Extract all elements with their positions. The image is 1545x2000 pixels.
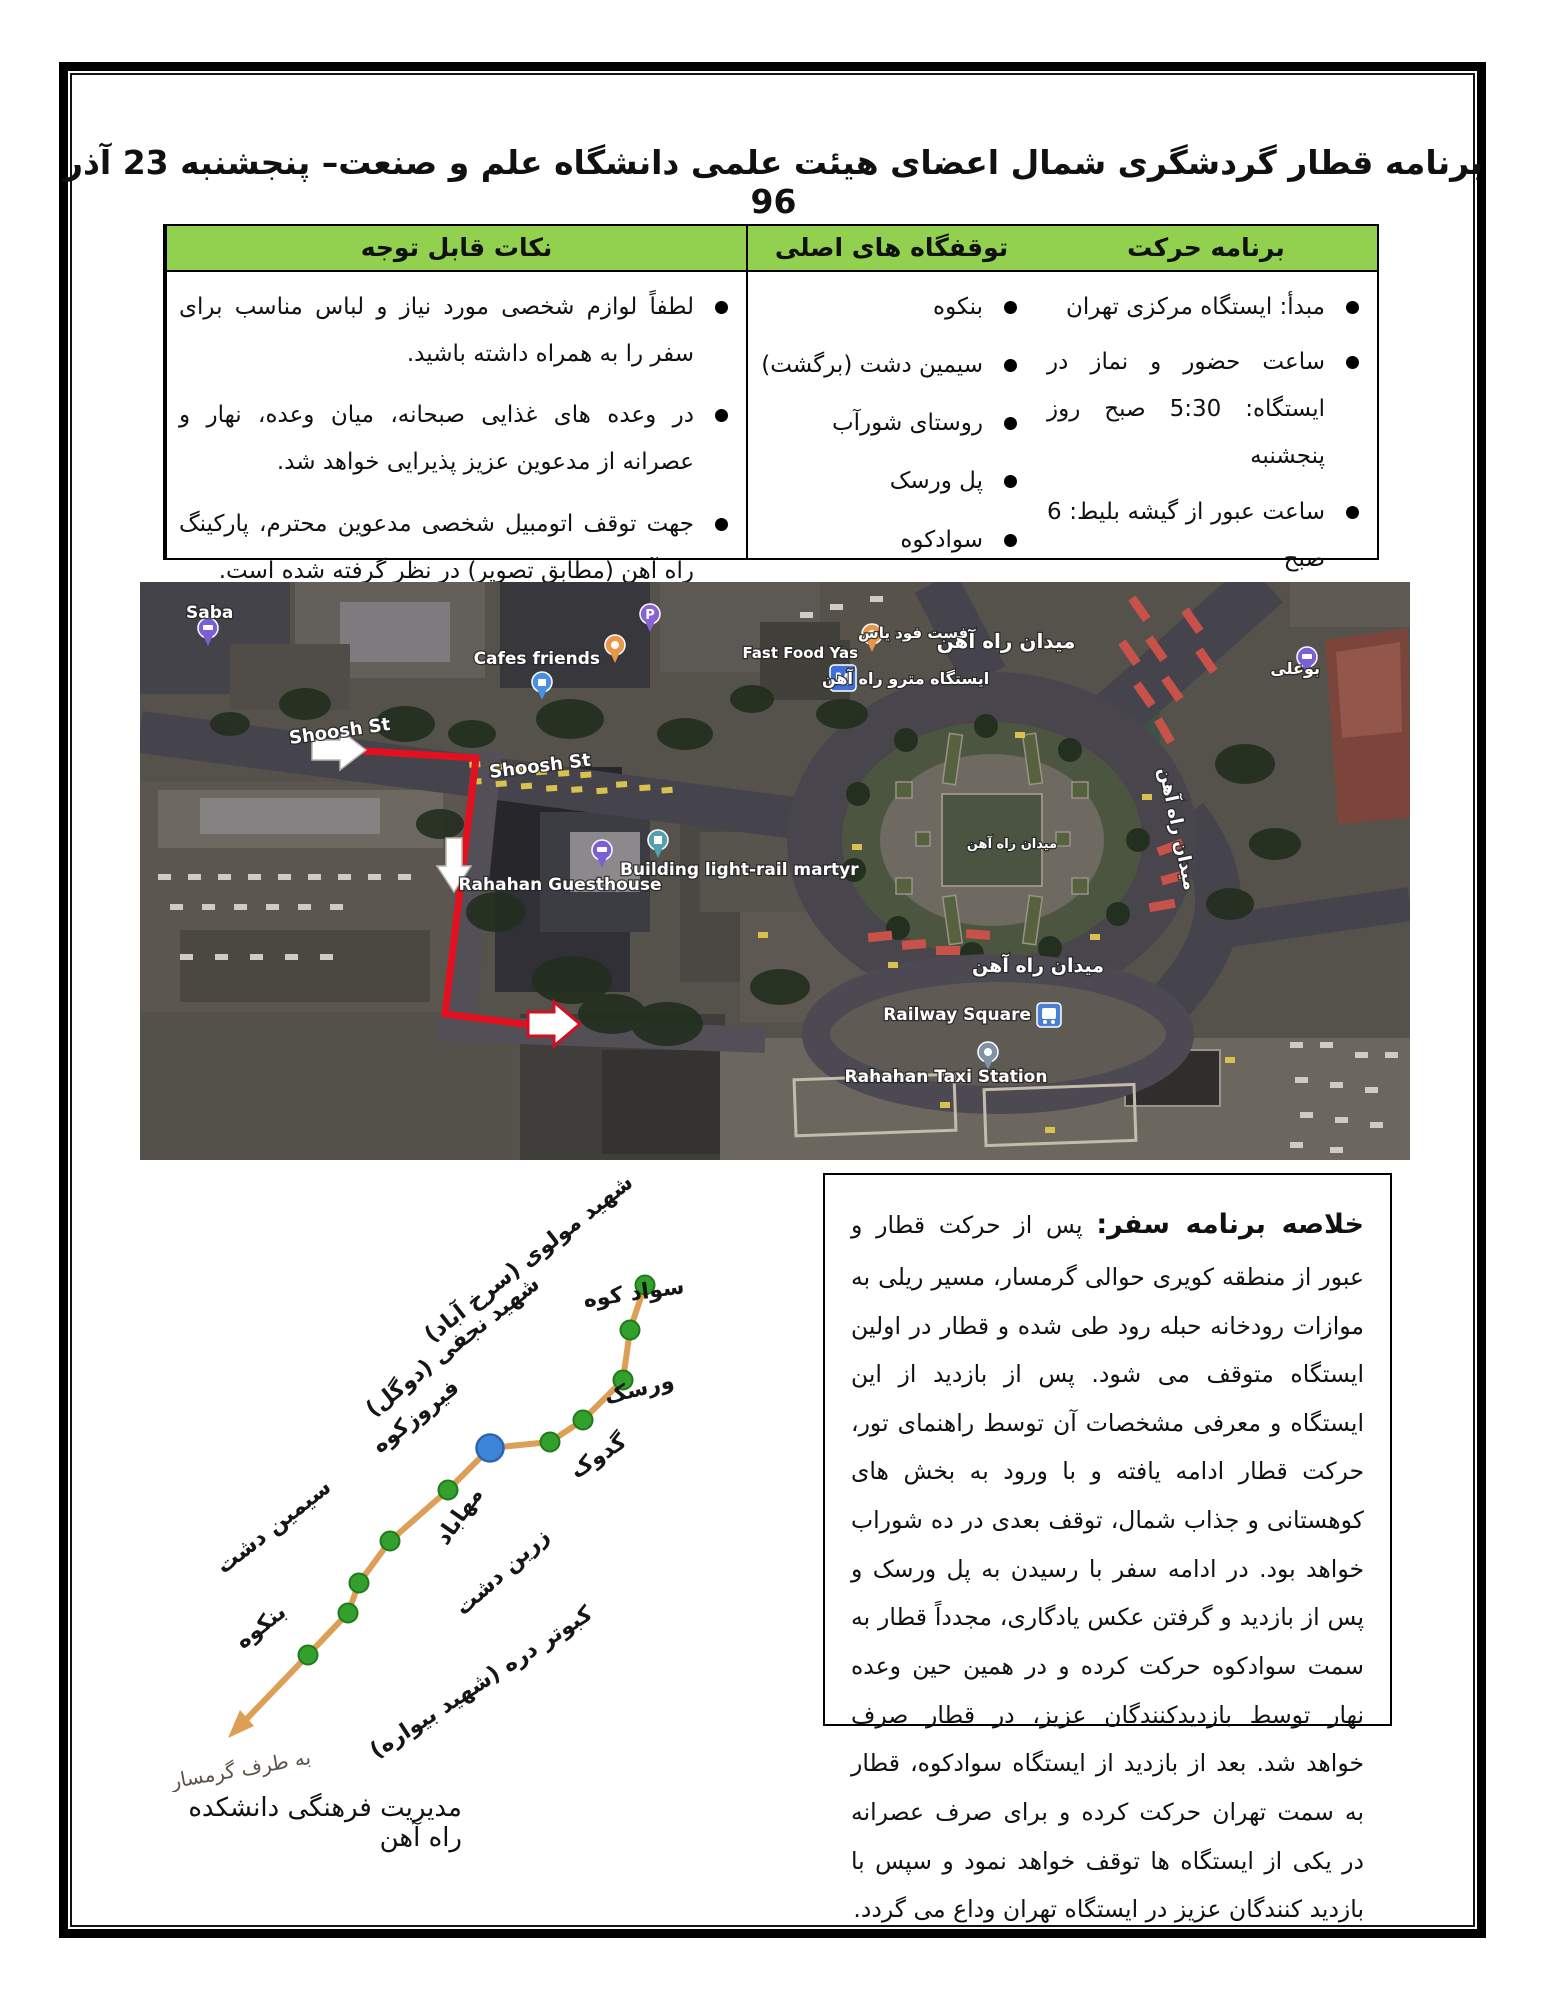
list-item: سیمین دشت (برگشت) xyxy=(760,342,1027,389)
list-item: در وعده های غذایی صبحانه، میان وعده، نها… xyxy=(179,392,738,486)
bouali-label: بوعلی xyxy=(1270,659,1320,678)
list-item: ساعت عبور از گیشه بلیط: 6 صبح xyxy=(1047,489,1369,583)
header-stops: توقفگاه های اصلی xyxy=(748,226,1035,272)
summary-body: پس از حرکت قطار و عبور از منطقه کویری حو… xyxy=(851,1211,1364,1923)
saba-label: Saba xyxy=(186,603,233,623)
header-notes: نکات قابل توجه xyxy=(167,226,746,272)
header-schedule: برنامه حرکت xyxy=(1035,226,1377,272)
station-label: گدوک xyxy=(565,1427,632,1483)
bus-square-icon xyxy=(1037,1003,1061,1027)
station-label: سیمین دشت xyxy=(212,1475,336,1580)
fastfood-label-en: Fast Food Yas xyxy=(742,644,858,662)
summary-heading: خلاصه برنامه سفر: xyxy=(1096,1209,1364,1240)
list-item: سوادکوه xyxy=(760,517,1027,564)
metro-station-label: ایستگاه مترو راه آهن xyxy=(822,668,989,688)
cafes-friends-label: Cafes friends xyxy=(474,649,600,669)
stops-list: بنکوه سیمین دشت (برگشت) روستای شورآب پل … xyxy=(748,272,1035,581)
trip-summary-box: خلاصه برنامه سفر: پس از حرکت قطار و عبور… xyxy=(823,1173,1392,1726)
guesthouse-label: Rahahan Guesthouse xyxy=(458,875,661,895)
taxi-station-label: Rahahan Taxi Station xyxy=(845,1067,1048,1087)
info-table: برنامه حرکت مبدأ: ایستگاه مرکزی تهران سا… xyxy=(163,224,1379,560)
column-schedule: برنامه حرکت مبدأ: ایستگاه مرکزی تهران سا… xyxy=(1035,226,1377,558)
railway-square-fa-top: میدان راه آهن xyxy=(937,628,1076,653)
station-label: ورسک xyxy=(602,1369,676,1410)
list-item: مبدأ: ایستگاه مرکزی تهران xyxy=(1047,284,1369,331)
firuzkuh-dot xyxy=(477,1435,504,1462)
route-diagram: سواد کوه شهید مولوی (سرخ آباد) ورسک شهید… xyxy=(150,1180,810,1792)
station-label: سواد کوه xyxy=(582,1274,686,1313)
list-item: ساعت حضور و نماز در ایستگاه: 5:30 صبح رو… xyxy=(1047,339,1369,480)
station-label: زرین دشت xyxy=(451,1524,555,1621)
list-item: جهت توقف اتومبیل شخصی مدعوین محترم، پارک… xyxy=(179,501,738,595)
station-labels: سواد کوه شهید مولوی (سرخ آباد) ورسک شهید… xyxy=(168,1180,686,1792)
svg-text:P: P xyxy=(645,608,655,623)
list-item: روستای شورآب xyxy=(760,400,1027,447)
railway-square-fa-bottom: میدان راه آهن xyxy=(972,953,1104,977)
column-notes: نکات قابل توجه لطفاً لوازم شخصی مورد نیا… xyxy=(165,226,746,558)
list-item: پل ورسک xyxy=(760,458,1027,505)
column-stops: توقفگاه های اصلی بنکوه سیمین دشت (برگشت)… xyxy=(746,226,1035,558)
station-label: کبوتر دره (شهید بیواره) xyxy=(366,1601,598,1763)
toward-garmsar-label: به طرف گرمسار xyxy=(168,1745,313,1792)
list-item: بنکوه xyxy=(760,284,1027,331)
footer-text: مدیریت فرهنگی دانشکده راه آهن xyxy=(150,1793,462,1853)
page-title: برنامه قطار گردشگری شمال اعضای هیئت علمی… xyxy=(60,143,1487,221)
railway-square-fa-center: میدان راه آهن xyxy=(967,835,1057,852)
list-item: لطفاً لوازم شخصی مورد نیاز و لباس مناسب … xyxy=(179,284,738,378)
station-label: شهید مولوی (سرخ آباد) xyxy=(418,1180,638,1348)
satellite-map: P M xyxy=(140,582,1410,1160)
rail-line-tail xyxy=(238,1655,308,1728)
notes-list: لطفاً لوازم شخصی مورد نیاز و لباس مناسب … xyxy=(167,272,746,615)
station-label: بنکوه xyxy=(231,1600,291,1655)
railway-square-en-label: Railway Square xyxy=(883,1005,1031,1025)
